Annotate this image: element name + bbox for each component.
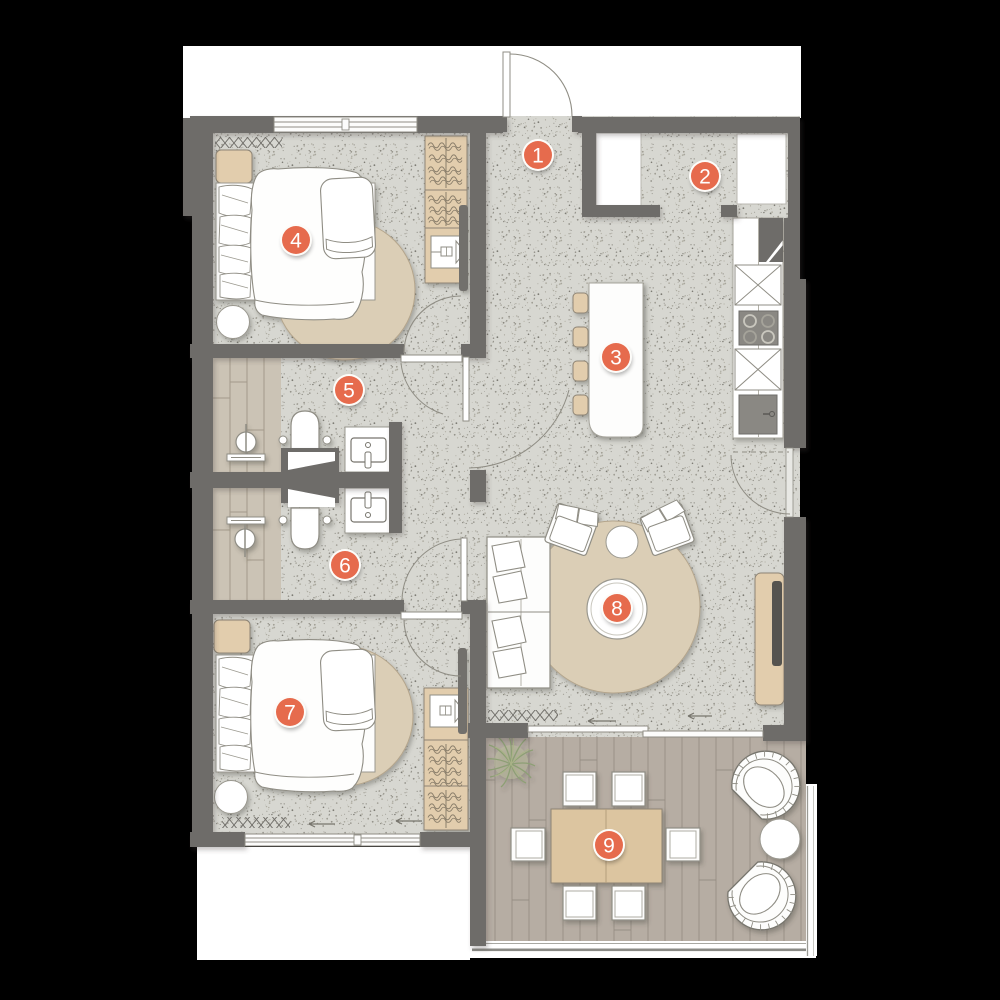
svg-text:6: 6	[339, 555, 351, 578]
svg-text:1: 1	[532, 145, 544, 168]
svg-text:3: 3	[610, 347, 622, 370]
svg-text:2: 2	[699, 166, 711, 189]
svg-text:7: 7	[284, 702, 296, 725]
svg-text:9: 9	[603, 835, 615, 858]
svg-text:5: 5	[343, 380, 355, 403]
svg-text:8: 8	[611, 598, 623, 621]
svg-text:4: 4	[290, 230, 302, 253]
